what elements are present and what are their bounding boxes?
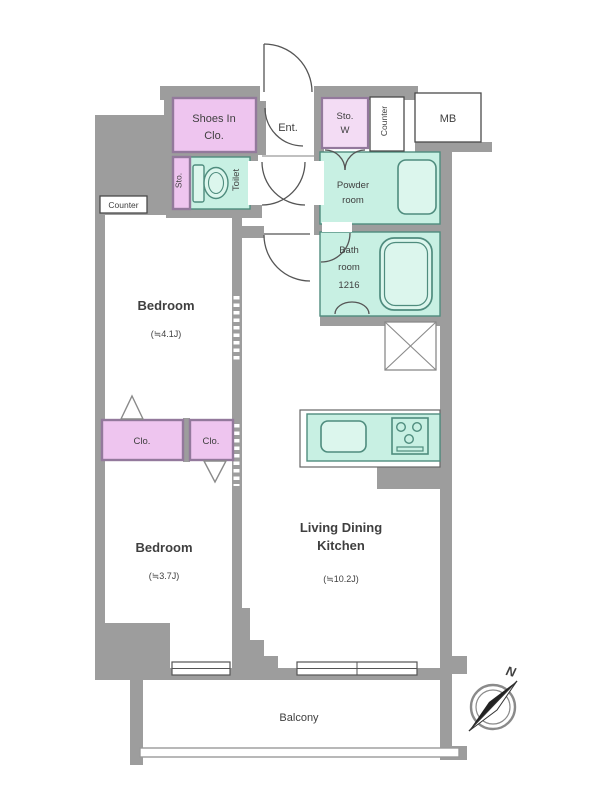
bedroom-upper-label: Bedroom [137,298,194,313]
kitchen-counter [300,410,440,467]
closet-door-triangle [204,461,226,482]
shoes-closet-label2: Clo. [204,130,224,142]
door-opening [322,222,352,232]
wall [256,95,266,155]
ldk-label2: Kitchen [317,538,365,553]
bedroom-upper-area: (≒4.1J) [151,329,182,339]
wall [232,214,242,608]
counter-top-label: Counter [379,106,389,136]
fridge-space-icon [385,322,436,370]
storage-w-label: Sto. [337,111,354,122]
ldk-label: Living Dining [300,520,382,535]
door-opening [248,161,258,205]
balcony-railing [140,748,459,757]
ldk-area: (≒10.2J) [323,574,359,584]
door-opening [314,161,324,205]
wall [415,142,492,152]
shoes-closet-label: Shoes In [192,113,235,125]
bathtub-icon [380,238,432,310]
window [297,662,417,675]
closet-door-triangle [121,396,143,419]
bedroom-lower-area: (≒3.7J) [149,571,180,581]
meter-box-label: MB [440,113,457,125]
toilet-label: Toilet [231,169,242,192]
closet-large-label: Clo. [134,436,151,447]
balcony-label: Balcony [279,712,319,724]
powder-room-label: Powder [337,180,369,191]
room-storage-w [322,98,368,148]
compass-north-label: N [505,663,518,680]
compass-icon: N [469,663,518,731]
bathroom-label3: 1216 [338,280,359,291]
powder-room-label2: room [342,195,364,206]
storage-small-label: Sto. [174,173,184,188]
toilet-door-arc [262,162,305,205]
stove-icon [392,418,428,454]
bathroom-label: Bath [339,245,359,256]
room-shoes-in-closet [173,98,256,152]
ldk-door-arc [264,234,310,281]
storage-w-label2: W [341,125,350,136]
toilet-icon [193,165,228,202]
wall [440,152,452,680]
wall [440,680,452,746]
counter-left-label: Counter [108,200,138,210]
powder-door-arc [262,162,305,205]
door-opening [260,84,314,101]
bathroom-label2: room [338,262,360,273]
window [172,662,230,675]
floorplan-page: N Shoes In Clo. Ent. Sto. W Counter MB S… [0,0,600,800]
vanity-sink-icon [398,160,436,214]
wall [242,226,264,238]
entrance-label: Ent. [278,122,298,134]
wall [440,656,467,674]
bedroom-lower-label: Bedroom [135,540,192,555]
kitchen-sink-icon [321,421,366,452]
closet-small-label: Clo. [203,436,220,447]
floorplan-drawing: N Shoes In Clo. Ent. Sto. W Counter MB S… [0,0,600,800]
